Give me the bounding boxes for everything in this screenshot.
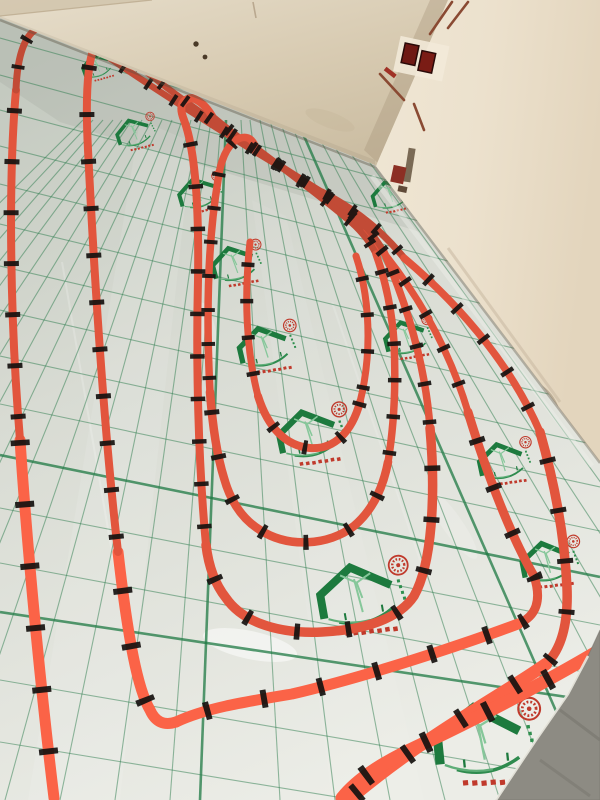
room-photo <box>0 0 600 800</box>
drill-hole <box>193 41 198 46</box>
outlet-box <box>418 51 436 73</box>
heating-installation-scene <box>0 0 600 800</box>
outlet-box <box>401 43 419 65</box>
drill-hole <box>203 55 208 60</box>
